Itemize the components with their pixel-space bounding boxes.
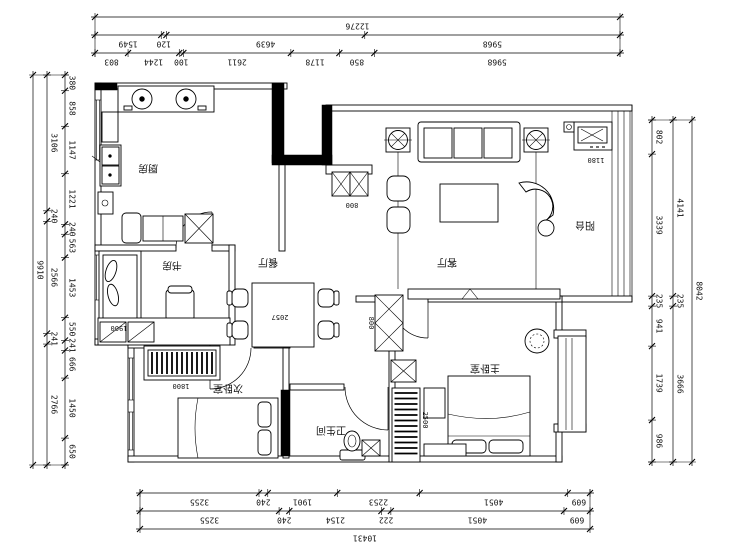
- desk-chair-icon: [166, 286, 194, 320]
- room-label-kitchen: 厨房: [138, 162, 158, 175]
- dim-label: 241: [68, 338, 77, 353]
- bench: [424, 444, 466, 456]
- dim-label-wardrobe-second: 1800: [173, 382, 190, 390]
- dim-label: 1549: [118, 40, 137, 49]
- dim-label: 222: [379, 516, 394, 525]
- dim-label: 1739: [655, 373, 664, 392]
- single-bed-icon: [178, 398, 278, 458]
- wardrobe-icon: [144, 346, 220, 380]
- dim-label: 3255: [200, 516, 219, 525]
- dim-label: 802: [655, 130, 664, 145]
- column-icon: [362, 440, 380, 456]
- dim-label: 2766: [50, 395, 59, 414]
- sliding-screen: [408, 289, 560, 299]
- dim-label: 2566: [50, 268, 59, 287]
- dim-label: 8042: [695, 281, 704, 300]
- floor-plan-svg: 厨房 书房 餐厅 客厅 阳台 主卧室 次卧室 卫生间 800 800 2057 …: [0, 0, 732, 546]
- column-icon: [185, 214, 213, 243]
- stove-icon: [118, 86, 214, 112]
- room-label-balcony: 阳台: [575, 219, 595, 232]
- dim-label: 5968: [483, 40, 502, 49]
- dim-label-desk-short: 1900: [111, 324, 128, 332]
- dim-label: 941: [655, 319, 664, 334]
- dim-label: 235: [676, 294, 685, 309]
- dim-label: 4639: [256, 40, 275, 49]
- dim-label: 241: [50, 332, 59, 347]
- master-bedroom-furniture: [391, 329, 549, 462]
- dim-label: 240: [50, 209, 59, 224]
- room-label-living: 客厅: [437, 256, 457, 269]
- dim-label: 9910: [36, 260, 45, 279]
- dim-label: 858: [68, 101, 77, 116]
- floor-plan-canvas: 厨房 书房 餐厅 客厅 阳台 主卧室 次卧室 卫生间 800 800 2057 …: [0, 0, 732, 546]
- dim-label-wardrobe-master: 2500: [421, 412, 429, 429]
- dim-label: 986: [655, 434, 664, 449]
- ottoman: [387, 207, 410, 233]
- dim-label: 4051: [484, 498, 503, 507]
- dim-label-shoe-cabinet: 800: [346, 201, 359, 209]
- dim-label: 240: [277, 516, 292, 525]
- sofa-icon: [418, 122, 520, 162]
- dim-label-desk-long: 2057: [272, 313, 289, 321]
- dim-label: 2253: [369, 498, 388, 507]
- room-label-dining: 餐厅: [258, 256, 278, 269]
- wardrobe-icon: [392, 388, 420, 462]
- dim-label: 3255: [190, 498, 209, 507]
- room-label-second-bedroom: 次卧室: [213, 382, 243, 395]
- dim-label: 550: [68, 322, 77, 337]
- room-label-master-bedroom: 主卧室: [470, 362, 500, 375]
- dim-label: 4051: [468, 516, 487, 525]
- windows: [95, 100, 632, 450]
- dim-label: 3106: [50, 133, 59, 152]
- dim-label: 2154: [326, 516, 345, 525]
- dim-label-tv-unit: 1180: [588, 156, 605, 164]
- round-chair-icon: [525, 329, 549, 353]
- tv-cabinet-icon: [564, 122, 612, 150]
- dim-label: 3666: [676, 374, 685, 393]
- dining-chair: [227, 321, 248, 339]
- dim-label: 100: [174, 58, 189, 67]
- kitchen-counter: [98, 192, 183, 243]
- dim-label: 10431: [353, 534, 377, 543]
- walls: [95, 83, 632, 462]
- column-icon: [391, 360, 416, 382]
- coffee-table: [440, 184, 498, 222]
- living-furniture: [384, 122, 612, 299]
- ceiling-lamp-icon: [522, 128, 550, 152]
- dim-label: 609: [571, 498, 586, 507]
- dining-chair: [318, 289, 339, 307]
- dim-label: 1244: [144, 58, 163, 67]
- dining-chair: [318, 321, 339, 339]
- dim-label: 563: [68, 239, 77, 254]
- dim-label: 380: [68, 76, 77, 91]
- dim-label: 235: [655, 294, 664, 309]
- dim-label: 650: [68, 444, 77, 459]
- second-bedroom-furniture: [144, 346, 278, 458]
- dim-label: 1178: [305, 58, 324, 67]
- dim-label: 666: [68, 357, 77, 372]
- kitchen-cabinet: [102, 112, 118, 142]
- dim-label: 120: [156, 40, 171, 49]
- dim-label: 2611: [227, 58, 246, 67]
- shoe-cabinet-icon: [332, 172, 368, 196]
- room-label-bathroom: 卫生间: [316, 424, 346, 437]
- dining-chair: [227, 289, 248, 307]
- dim-label: 3339: [655, 215, 664, 234]
- dim-label: 1453: [68, 278, 77, 297]
- room-label-study: 书房: [162, 259, 182, 272]
- side-table: [538, 220, 554, 236]
- dim-label-hall-column: 800: [367, 317, 375, 330]
- dim-label: 609: [570, 516, 585, 525]
- ceiling-lamp-icon: [384, 128, 412, 152]
- dim-label: 803: [104, 58, 119, 67]
- dim-label: 1450: [68, 398, 77, 417]
- dim-label: 850: [349, 58, 364, 67]
- dim-label: 1147: [68, 140, 77, 159]
- dim-label: 4141: [676, 198, 685, 217]
- dim-label: 240: [68, 222, 77, 237]
- dim-label: 240: [256, 498, 271, 507]
- armchair-icon: [519, 182, 554, 221]
- dim-label: 1221: [68, 189, 77, 208]
- hall-column-icon: [375, 295, 403, 351]
- bathroom-door: [345, 387, 388, 430]
- dim-label: 12276: [345, 22, 369, 31]
- dim-label: 5968: [487, 58, 506, 67]
- ottoman: [387, 176, 410, 201]
- dim-label: 1901: [293, 498, 312, 507]
